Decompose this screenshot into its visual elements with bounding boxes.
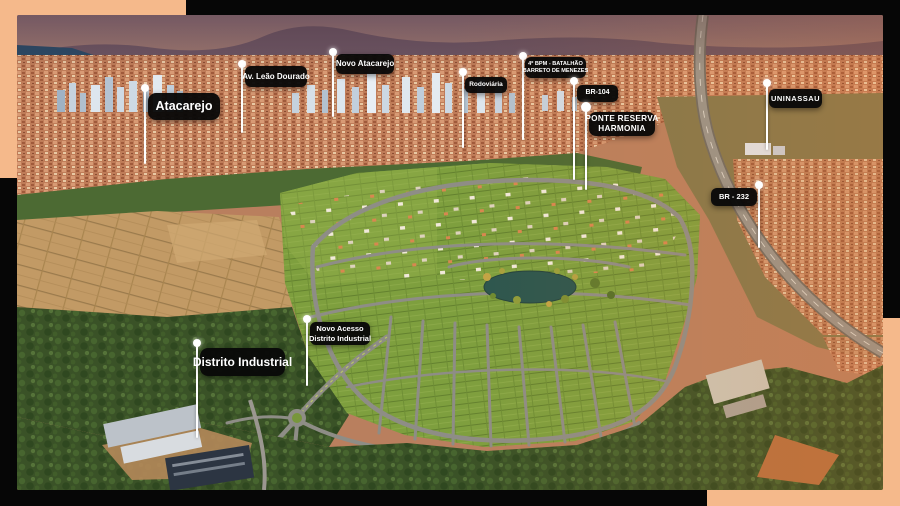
label-text: Novo Atacarejo (336, 59, 394, 69)
pin-dot (141, 84, 149, 92)
label-distrito-industrial: Distrito Industrial (200, 348, 285, 376)
pin-line (573, 81, 575, 180)
pin-dot (303, 315, 311, 323)
pin-dot (570, 77, 578, 85)
label-text: Rodoviária (469, 81, 503, 89)
label-text: Distrito Industrial (193, 355, 292, 370)
label-text: HARMONIA (598, 124, 645, 134)
pin-line (306, 319, 308, 386)
label-text: Distrito Industrial (309, 334, 371, 343)
pin-line (766, 83, 768, 150)
label-text: BR - 232 (719, 192, 749, 201)
label-novo-atacarejo: Novo Atacarejo (336, 54, 394, 74)
label-text: UNINASSAU (771, 94, 820, 103)
label-text: BR-104 (585, 89, 609, 98)
pin-line (144, 88, 146, 164)
label-text: PONTE RESERVA (585, 114, 658, 124)
label-atacarejo: Atacarejo (148, 93, 220, 120)
pin-dot (581, 102, 591, 112)
pin-dot (459, 68, 467, 76)
pin-dot (238, 60, 246, 68)
pin-dot (763, 79, 771, 87)
label-text: 4º BPM - BATALHÃO (528, 61, 583, 68)
label-bpm: 4º BPM - BATALHÃO BARRETO DE MENEZES (525, 57, 586, 78)
label-br-232: BR - 232 (711, 188, 757, 206)
pin-line (758, 185, 760, 248)
pin-line (332, 52, 334, 117)
pin-dot (755, 181, 763, 189)
label-uninassau: UNINASSAU (769, 89, 822, 108)
label-text: Av. Leão Dourado (242, 72, 310, 82)
label-text: BARRETO DE MENEZES (523, 68, 588, 75)
pin-dot (193, 339, 201, 347)
label-rodoviaria: Rodoviária (465, 77, 507, 93)
label-novo-acesso: Novo Acesso Distrito Industrial (310, 322, 370, 345)
label-br-104: BR-104 (577, 85, 618, 102)
pin-dot (329, 48, 337, 56)
label-av-leao-dourado: Av. Leão Dourado (245, 66, 307, 87)
label-text: Atacarejo (156, 99, 213, 115)
pin-line (462, 72, 464, 148)
label-ponte-reserva-harmonia: PONTE RESERVA HARMONIA (589, 112, 655, 136)
label-text: Novo Acesso (316, 324, 363, 333)
hero-aerial-map: Atacarejo Av. Leão Dourado Novo Atacarej… (0, 0, 900, 506)
